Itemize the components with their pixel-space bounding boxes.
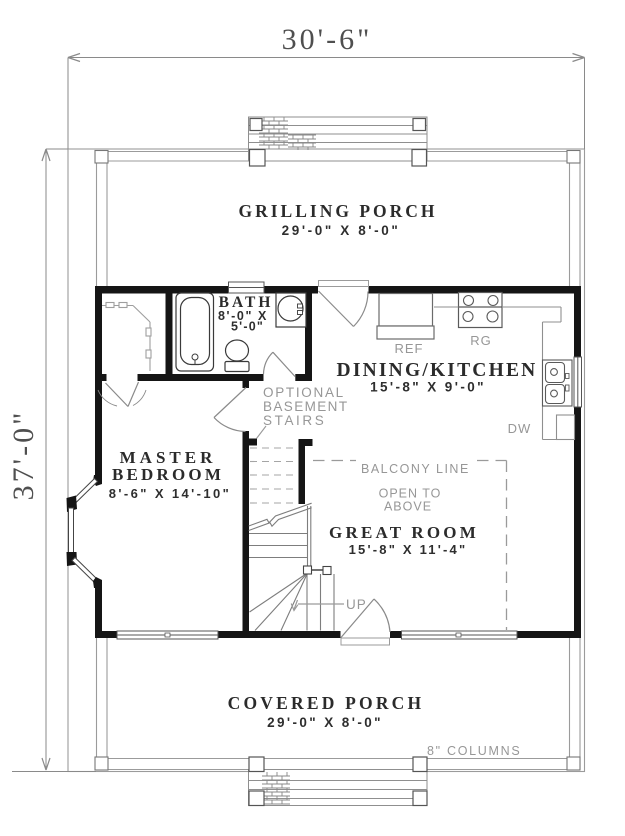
svg-text:8'-6" X 14'-10": 8'-6" X 14'-10" [109,486,231,501]
svg-text:UP: UP [346,597,367,612]
svg-text:15'-8" X 11'-4": 15'-8" X 11'-4" [349,542,468,557]
svg-text:29'-0" X 8'-0": 29'-0" X 8'-0" [282,223,401,238]
svg-text:BALCONY LINE: BALCONY LINE [361,462,470,476]
svg-text:DINING/KITCHEN: DINING/KITCHEN [337,360,538,381]
svg-text:15'-8" X 9'-0": 15'-8" X 9'-0" [370,380,486,395]
svg-text:ABOVE: ABOVE [384,500,432,514]
svg-text:RG: RG [470,333,492,348]
svg-text:STAIRS: STAIRS [263,413,326,428]
svg-text:COVERED PORCH: COVERED PORCH [228,693,425,713]
svg-text:5'-0": 5'-0" [231,320,264,334]
svg-text:29'-0" X 8'-0": 29'-0" X 8'-0" [267,715,383,730]
svg-text:REF: REF [395,341,424,356]
svg-text:8" COLUMNS: 8" COLUMNS [427,744,521,758]
svg-text:OPTIONAL: OPTIONAL [263,385,345,400]
svg-text:GRILLING PORCH: GRILLING PORCH [238,201,437,221]
svg-text:DW: DW [508,421,532,436]
svg-text:OPEN TO: OPEN TO [379,487,442,501]
svg-text:37'-0": 37'-0" [7,410,40,501]
svg-text:GREAT ROOM: GREAT ROOM [329,523,479,542]
svg-text:BEDROOM: BEDROOM [112,465,224,484]
svg-text:BASEMENT: BASEMENT [263,399,348,414]
svg-text:30'-6": 30'-6" [282,23,373,56]
